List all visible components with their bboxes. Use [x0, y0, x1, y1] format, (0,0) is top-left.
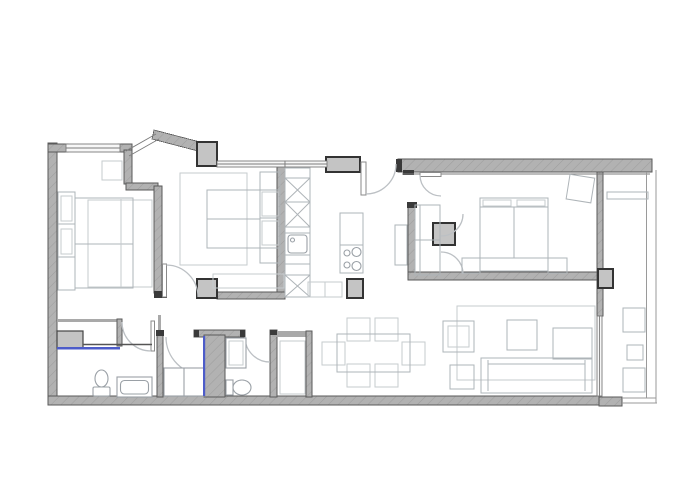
door-leaf-hall-entry	[361, 162, 366, 195]
pillow	[483, 200, 511, 206]
kitchen-sink	[288, 235, 307, 253]
wall-cap	[156, 330, 164, 336]
dining-chair	[402, 342, 425, 365]
wall-shower-stub	[158, 315, 161, 331]
balcony-bench	[607, 192, 648, 199]
dining-chair	[375, 318, 398, 341]
toilet-bowl	[95, 370, 108, 387]
coffee-table	[507, 320, 537, 350]
burner	[352, 248, 361, 257]
vanity-accent-strip	[57, 347, 120, 350]
stool	[308, 282, 325, 297]
door-leaf-bathroom1	[151, 321, 155, 351]
burner	[344, 262, 350, 268]
stool	[325, 282, 342, 297]
wall-bedroom1-bedroom2	[154, 186, 162, 293]
wall-bathroom1-stub	[117, 319, 122, 346]
door-arc-hall-entry	[366, 164, 396, 194]
pillow	[517, 200, 545, 206]
sofa-chaise	[553, 328, 592, 359]
living-area	[443, 306, 595, 393]
wall-master-left	[408, 204, 415, 279]
door-arc-master	[420, 175, 441, 196]
exterior-wall-left	[48, 143, 57, 405]
door-arc-bathroom1	[122, 322, 151, 351]
bedroom-2	[180, 172, 284, 288]
dining-chair	[375, 364, 398, 387]
dining-table	[337, 334, 410, 372]
bench	[213, 274, 284, 288]
walls	[48, 130, 652, 406]
tilted-chair	[566, 174, 595, 203]
toilet-tank	[93, 387, 110, 396]
floor-plan-page	[0, 0, 700, 500]
pillow	[262, 221, 278, 245]
door-leaf-master	[420, 173, 441, 177]
column-kitchen	[347, 279, 363, 298]
bay-window-line	[129, 139, 159, 156]
bay-window-line	[126, 134, 156, 151]
planter	[623, 308, 645, 332]
door-leaf-bedroom2	[163, 264, 167, 297]
wall-cap	[240, 330, 245, 337]
armchair-cushion	[448, 326, 469, 347]
wall-cap	[194, 330, 199, 337]
wall-shelf	[102, 161, 122, 180]
wall-bedroom2-bottom	[217, 292, 285, 299]
exterior-wall-top-right	[398, 159, 652, 172]
double-bed	[75, 198, 133, 288]
wall-master-bottom	[408, 272, 599, 280]
nightstand	[462, 258, 480, 273]
vanity	[57, 331, 83, 348]
pillow	[262, 192, 278, 216]
pillow	[61, 196, 72, 221]
balcony	[607, 192, 648, 392]
pillow	[61, 229, 72, 254]
wall-cap	[270, 330, 277, 335]
dining-chair	[347, 364, 370, 387]
floor-plan-drawing	[0, 0, 700, 500]
exterior-wall-bottom-step	[599, 397, 622, 406]
utility-niche	[280, 341, 305, 394]
pier-facade-2	[326, 157, 360, 172]
burner	[344, 250, 350, 256]
glass-screen	[203, 336, 205, 396]
duct-shower-wc	[204, 335, 225, 397]
toilet-bowl	[233, 380, 251, 395]
wc	[226, 338, 305, 395]
door-arc-bedroom2	[167, 265, 199, 297]
bay-diagonal-wall	[152, 130, 200, 151]
toilet-tank	[226, 380, 233, 395]
dining-area	[322, 318, 425, 387]
planter	[623, 368, 645, 392]
pier-facade-1	[197, 142, 217, 166]
column-balcony	[598, 269, 613, 288]
burner	[352, 262, 361, 271]
faucet	[291, 238, 295, 242]
wall-step-horizontal	[126, 183, 158, 190]
bathtub-inner	[121, 381, 149, 395]
dining-chair	[347, 318, 370, 341]
nightstand	[548, 258, 567, 273]
door-arc-wc	[245, 337, 270, 362]
sofa	[481, 358, 592, 393]
side-table	[450, 365, 474, 389]
wall-cap	[396, 159, 402, 172]
wall-wc-right	[270, 330, 277, 397]
bedroom-1	[58, 161, 152, 290]
planter	[627, 345, 643, 360]
bathroom-1	[57, 331, 152, 397]
wall-right-interior	[597, 172, 603, 316]
rug	[457, 306, 595, 380]
kitchen	[285, 168, 363, 297]
exterior-wall-top-left	[48, 144, 68, 152]
shower-room	[164, 336, 205, 396]
closet-door-arc-lower	[441, 252, 463, 274]
dining-chair	[322, 342, 345, 365]
wall-niche-right	[306, 331, 312, 397]
wall-bathroom1-shower	[157, 331, 163, 397]
hall-console	[395, 225, 407, 265]
wall-bathroom1-top	[57, 319, 117, 322]
